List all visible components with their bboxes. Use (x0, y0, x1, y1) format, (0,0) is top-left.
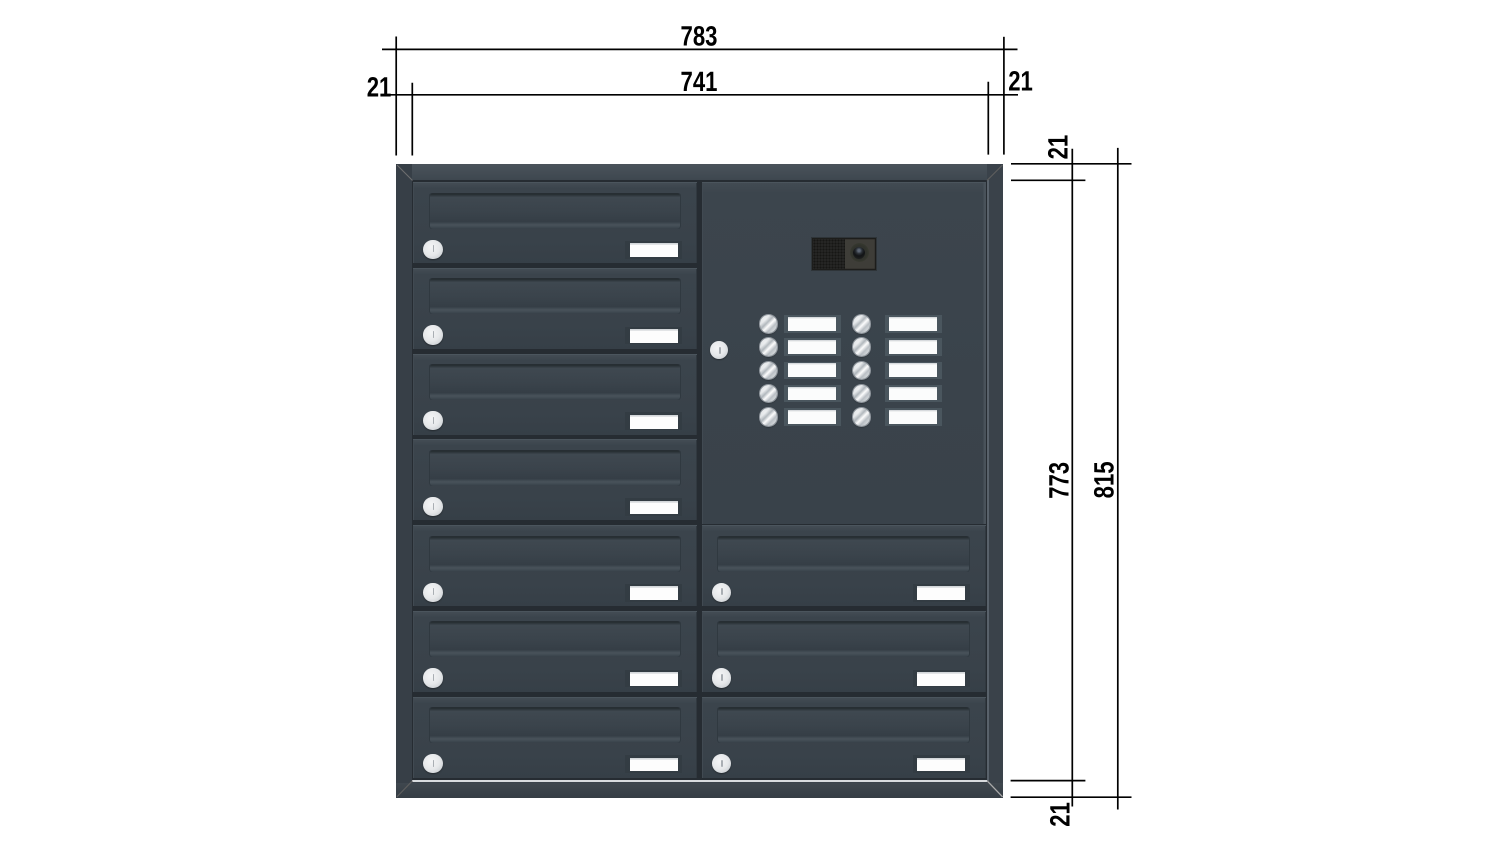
svg-text:815: 815 (1089, 461, 1120, 498)
svg-text:741: 741 (681, 66, 718, 97)
svg-text:783: 783 (681, 20, 718, 51)
svg-text:21: 21 (1045, 802, 1076, 827)
svg-text:21: 21 (1008, 66, 1033, 97)
svg-text:21: 21 (367, 71, 392, 102)
svg-text:773: 773 (1043, 462, 1074, 499)
svg-text:21: 21 (1043, 135, 1074, 160)
